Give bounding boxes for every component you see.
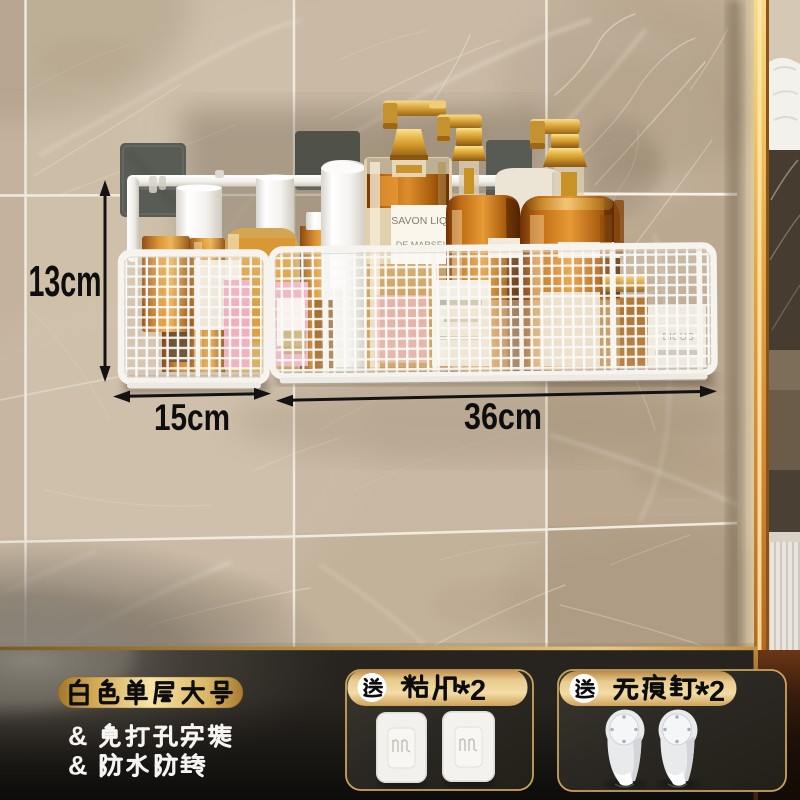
svg-text:*: * — [695, 674, 710, 715]
svg-text:13cm: 13cm — [29, 257, 102, 306]
svg-text:&: & — [68, 721, 88, 751]
svg-text:&: & — [68, 751, 88, 781]
svg-text:15cm: 15cm — [154, 397, 230, 438]
svg-text:*: * — [456, 673, 471, 714]
svg-text:2: 2 — [470, 675, 486, 707]
svg-text:SAVON LIQU: SAVON LIQU — [391, 215, 454, 227]
svg-text:2: 2 — [709, 676, 725, 708]
svg-text:36cm: 36cm — [464, 396, 542, 437]
